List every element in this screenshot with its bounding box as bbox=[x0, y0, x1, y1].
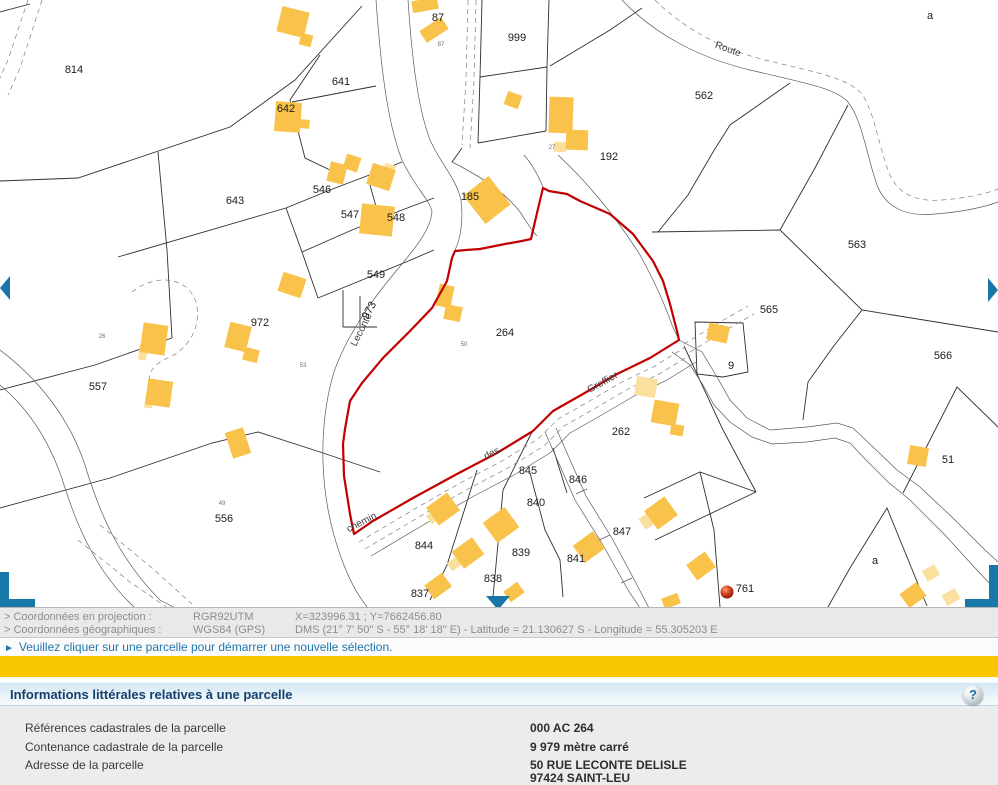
parcel-label: 185 bbox=[461, 191, 479, 203]
parcel-label: 844 bbox=[415, 540, 433, 552]
parcel-label: 837 bbox=[411, 588, 429, 600]
parcel-label: 642 bbox=[277, 103, 295, 115]
parcel-label: a bbox=[872, 555, 879, 567]
instruction-text: Veuillez cliquer sur une parcelle pour d… bbox=[19, 640, 393, 654]
parcel-label: 972 bbox=[251, 317, 269, 329]
parcel-info-section-header: Informations littérales relatives à une … bbox=[0, 682, 998, 706]
projection-system: RGR92UTM bbox=[193, 610, 254, 624]
section-title: Informations littérales relatives à une … bbox=[10, 683, 293, 706]
cadastral-reference-value: 000 AC 264 bbox=[530, 720, 594, 736]
parcel-label: 839 bbox=[512, 547, 530, 559]
parcel-label: 846 bbox=[569, 474, 587, 486]
parcel-label: a bbox=[927, 10, 934, 22]
parcel-label: 192 bbox=[600, 151, 618, 163]
parcel-label: 548 bbox=[387, 212, 405, 224]
parcel-label: 565 bbox=[760, 304, 778, 316]
parcel-label: 563 bbox=[848, 239, 866, 251]
geographic-coordinates-row: > Coordonnées géographiques : WGS84 (GPS… bbox=[0, 623, 998, 637]
house-number: 49 bbox=[219, 501, 226, 507]
coordinates-status-bar: > Coordonnées en projection : RGR92UTM X… bbox=[0, 607, 998, 638]
parcel-label: 562 bbox=[695, 90, 713, 102]
parcel-address-row2: 97424 SAINT-LEU bbox=[0, 770, 998, 785]
cadastral-area-value: 9 979 mètre carré bbox=[530, 739, 629, 755]
house-number: 50 bbox=[461, 342, 468, 348]
cadastral-area-row: Contenance cadastrale de la parcelle 9 9… bbox=[0, 739, 998, 755]
cadastral-area-label: Contenance cadastrale de la parcelle bbox=[25, 739, 223, 755]
parcel-label: 546 bbox=[313, 184, 331, 196]
parcel-label: 51 bbox=[942, 454, 954, 466]
parcel-label: 999 bbox=[508, 32, 526, 44]
parcel-label: 847 bbox=[613, 526, 631, 538]
arrow-bullet-icon: ► bbox=[4, 643, 14, 654]
geographic-value: DMS (21° 7' 50" S - 55° 18' 18" E) - Lat… bbox=[295, 623, 718, 637]
instruction-message-bar: ►Veuillez cliquer sur une parcelle pour … bbox=[0, 639, 998, 656]
parcel-label: 9 bbox=[728, 360, 734, 372]
parcel-info-panel: Références cadastrales de la parcelle 00… bbox=[0, 706, 998, 785]
cadastral-reference-row: Références cadastrales de la parcelle 00… bbox=[0, 720, 998, 736]
parcel-label: 840 bbox=[527, 497, 545, 509]
parcel-label: 549 bbox=[367, 269, 385, 281]
parcel-label: 845 bbox=[519, 465, 537, 477]
parcel-label: 262 bbox=[612, 426, 630, 438]
house-number: 26 bbox=[99, 334, 106, 340]
house-number: 27 bbox=[549, 145, 556, 151]
projection-coordinates-row: > Coordonnées en projection : RGR92UTM X… bbox=[0, 610, 998, 624]
parcel-label: 841 bbox=[567, 553, 585, 565]
parcel-label: 643 bbox=[226, 195, 244, 207]
parcel-label: 814 bbox=[65, 64, 83, 76]
geographic-label: > Coordonnées géographiques : bbox=[4, 623, 161, 637]
parcel-label: 566 bbox=[934, 350, 952, 362]
parcel-label: 641 bbox=[332, 76, 350, 88]
cadastre-app: 814 87 999 562 641 642 643 546 547 548 5… bbox=[0, 0, 998, 785]
parcel-label: 838 bbox=[484, 573, 502, 585]
cadastral-map[interactable]: 814 87 999 562 641 642 643 546 547 548 5… bbox=[0, 0, 998, 607]
house-number: 53 bbox=[300, 363, 307, 369]
parcel-label: 556 bbox=[215, 513, 233, 525]
survey-marker-sphere bbox=[721, 586, 734, 599]
parcel-label: 87 bbox=[432, 12, 444, 24]
projection-value: X=323996.31 ; Y=7662456.80 bbox=[295, 610, 442, 624]
parcel-label: 761 bbox=[736, 583, 754, 595]
cadastral-reference-label: Références cadastrales de la parcelle bbox=[25, 720, 226, 736]
geographic-system: WGS84 (GPS) bbox=[193, 623, 265, 637]
help-icon[interactable]: ? bbox=[963, 685, 983, 705]
parcel-address-line2: 97424 SAINT-LEU bbox=[530, 770, 630, 785]
parcel-label: 547 bbox=[341, 209, 359, 221]
house-number: 87 bbox=[438, 42, 445, 48]
yellow-separator-bar bbox=[0, 656, 998, 677]
projection-label: > Coordonnées en projection : bbox=[4, 610, 152, 624]
parcel-label: 264 bbox=[496, 327, 514, 339]
parcel-label: 557 bbox=[89, 381, 107, 393]
